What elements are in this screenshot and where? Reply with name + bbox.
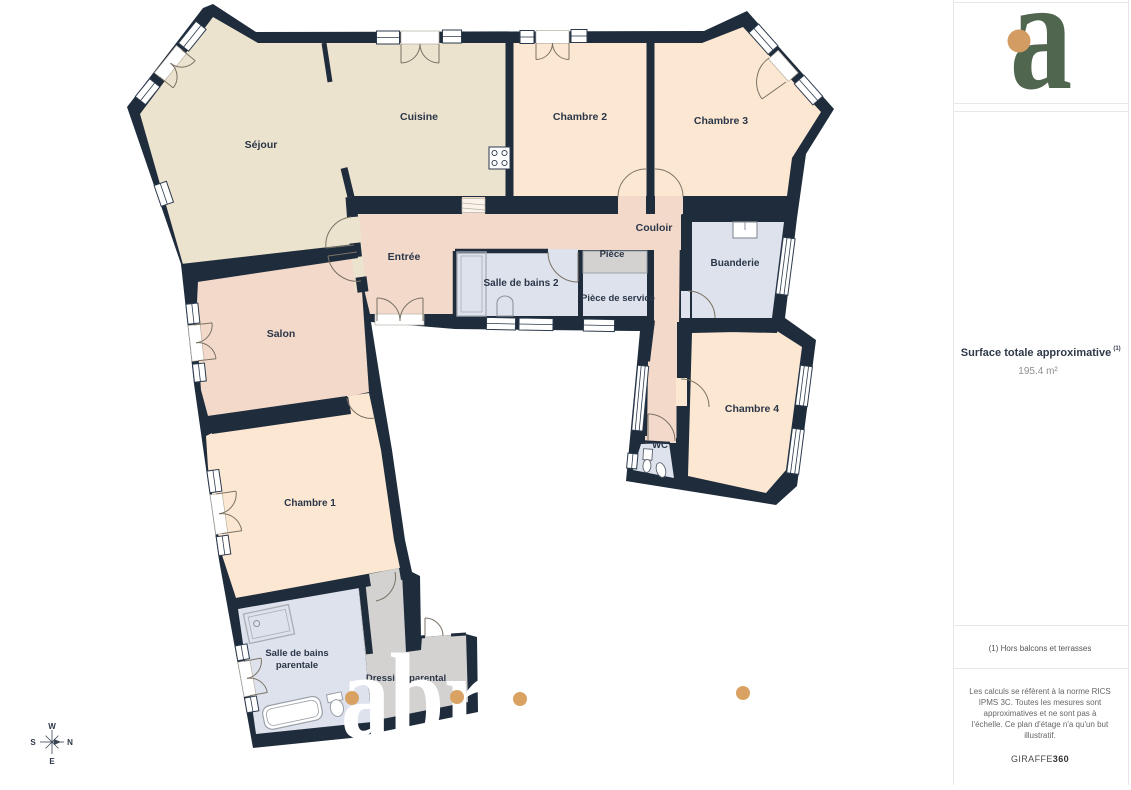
svg-text:W: W [48, 722, 56, 731]
svg-text:approximatives et ne sont pas: approximatives et ne sont pas à [984, 709, 1098, 718]
svg-text:Salon: Salon [267, 328, 296, 340]
svg-text:Chambre 2: Chambre 2 [553, 111, 607, 123]
svg-text:Cuisine: Cuisine [400, 111, 438, 123]
svg-text:l'échelle. Ce plan d'étage n'a: l'échelle. Ce plan d'étage n'a qu'un but [972, 720, 1109, 729]
svg-text:(1) Hors balcons et terrasses: (1) Hors balcons et terrasses [989, 644, 1092, 653]
svg-text:Chambre 1: Chambre 1 [284, 498, 336, 509]
svg-text:GIRAFFE360: GIRAFFE360 [1011, 754, 1069, 764]
svg-text:Buanderie: Buanderie [711, 258, 760, 269]
svg-text:Chambre 4: Chambre 4 [725, 403, 779, 415]
svg-text:abr: abr [341, 629, 487, 764]
svg-text:Couloir: Couloir [636, 222, 673, 234]
svg-text:parentale: parentale [276, 660, 318, 671]
svg-text:(1): (1) [1113, 346, 1120, 352]
svg-text:Pièce: Pièce [600, 249, 625, 260]
svg-text:a: a [1010, 0, 1072, 124]
svg-text:Salle de bains: Salle de bains [265, 648, 328, 659]
svg-text:Surface totale approximative: Surface totale approximative [961, 347, 1111, 359]
svg-text:S: S [30, 738, 36, 747]
svg-text:Salle de bains 2: Salle de bains 2 [483, 278, 558, 289]
svg-text:Pièce de service: Pièce de service [581, 293, 655, 304]
svg-text:WC: WC [652, 440, 668, 451]
svg-text:Chambre 3: Chambre 3 [694, 115, 748, 127]
svg-text:Les calculs se réfèrent à la n: Les calculs se réfèrent à la norme RICS [969, 687, 1110, 696]
svg-text:N: N [67, 738, 73, 747]
svg-text:Entrée: Entrée [388, 251, 421, 263]
svg-text:E: E [49, 757, 55, 766]
svg-text:illustratif.: illustratif. [1024, 731, 1056, 740]
svg-text:Séjour: Séjour [245, 139, 278, 151]
svg-text:IPMS 3C. Toutes les mesures so: IPMS 3C. Toutes les mesures sont [979, 698, 1102, 707]
svg-text:195.4 m²: 195.4 m² [1018, 366, 1058, 377]
